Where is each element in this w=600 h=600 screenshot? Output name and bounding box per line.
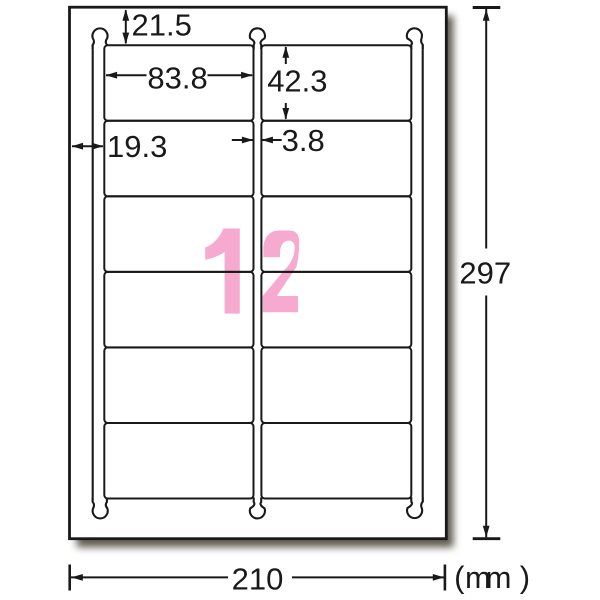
svg-text:(: ( (454, 560, 465, 595)
svg-text:297: 297 (459, 255, 511, 290)
svg-text:210: 210 (232, 561, 284, 596)
svg-text:42.3: 42.3 (267, 64, 327, 99)
svg-text:83.8: 83.8 (147, 61, 207, 96)
svg-text:21.5: 21.5 (132, 8, 192, 43)
svg-text:19.3: 19.3 (107, 129, 167, 164)
svg-text:3.8: 3.8 (282, 123, 325, 158)
svg-text:m: m (486, 560, 512, 595)
svg-text:): ) (520, 560, 530, 595)
